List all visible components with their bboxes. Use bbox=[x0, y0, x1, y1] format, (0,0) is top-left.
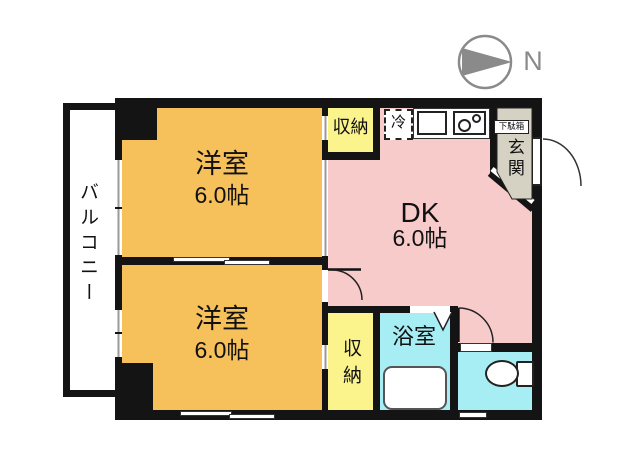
stove-burner-large-icon bbox=[458, 119, 471, 132]
refrigerator-label: 冷 bbox=[386, 115, 411, 131]
window-left-2 bbox=[115, 209, 122, 255]
toilet-window bbox=[459, 412, 487, 418]
shoe-box: 下駄箱 bbox=[494, 120, 529, 134]
stove-burner-small-icon bbox=[472, 114, 481, 123]
kitchen-sink bbox=[417, 111, 447, 135]
sliding-door-between-rooms-1 bbox=[173, 257, 230, 262]
compass-circle-icon bbox=[459, 36, 511, 88]
window-left-4 bbox=[115, 334, 122, 357]
window-left-3 bbox=[115, 310, 122, 332]
bathroom-door-opening bbox=[410, 306, 450, 313]
door-arc-entrance bbox=[543, 139, 581, 186]
bathroom-label: 浴室 bbox=[378, 325, 450, 348]
compass-north-label: N bbox=[518, 47, 548, 75]
kitchen-entrance-wall bbox=[490, 108, 497, 175]
dk-name: DK bbox=[370, 198, 470, 227]
closet-bottom-label: 収納 bbox=[340, 338, 360, 392]
western-room-bottom-size: 6.0帖 bbox=[132, 338, 312, 362]
refrigerator-space: 冷 bbox=[384, 109, 413, 140]
western-room-top-size: 6.0帖 bbox=[132, 183, 312, 207]
kitchen-stove bbox=[453, 111, 486, 135]
toilet-door-opening bbox=[460, 343, 492, 352]
window-left-1 bbox=[115, 160, 122, 207]
entrance-door-leaf bbox=[531, 137, 542, 186]
toilet-bowl-icon bbox=[485, 360, 519, 387]
shoe-box-label: 下駄箱 bbox=[495, 122, 528, 131]
floor-plan: バルコニー 冷 bbox=[0, 0, 640, 455]
western-room-bottom-name: 洋室 bbox=[132, 305, 312, 333]
western-room-top-name: 洋室 bbox=[132, 150, 312, 178]
sliding-door-room1-dk bbox=[322, 160, 328, 256]
door-opening-room2-dk bbox=[322, 270, 328, 302]
compass-needle-icon bbox=[462, 48, 512, 76]
entrance-label: 玄関 bbox=[505, 138, 523, 180]
bathtub bbox=[383, 366, 447, 410]
window-bottom-1 bbox=[180, 411, 232, 416]
closet-top-label: 収納 bbox=[328, 118, 373, 137]
kitchen-counter bbox=[413, 108, 490, 139]
dk-size: 6.0帖 bbox=[370, 226, 470, 250]
closet-bottom-opening bbox=[322, 345, 328, 369]
pillar-bottom-left bbox=[115, 363, 153, 420]
balcony-label: バルコニー bbox=[77, 182, 97, 307]
pillar-top-left bbox=[115, 98, 157, 140]
window-bottom-2 bbox=[229, 414, 275, 419]
sliding-door-between-rooms-2 bbox=[224, 260, 270, 265]
